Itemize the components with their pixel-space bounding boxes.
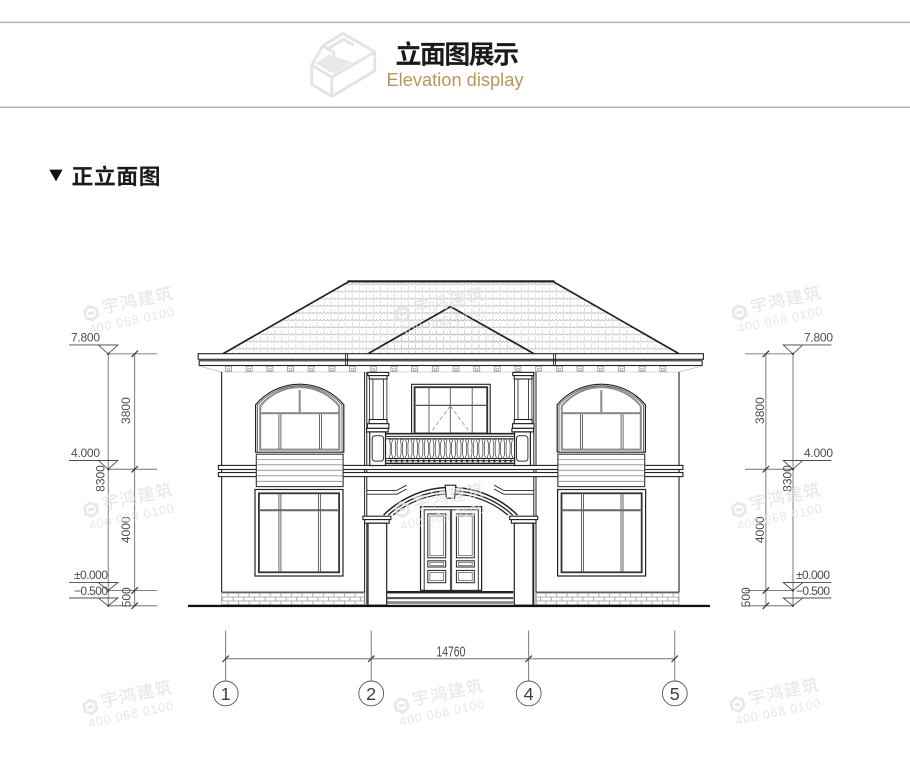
- svg-text:8300: 8300: [93, 465, 107, 492]
- svg-text:2: 2: [366, 684, 376, 704]
- svg-text:Elevation display: Elevation display: [387, 69, 525, 90]
- svg-text:−0.500: −0.500: [796, 584, 830, 598]
- svg-text:5: 5: [670, 684, 680, 704]
- svg-text:3800: 3800: [753, 397, 767, 424]
- svg-text:±0.000: ±0.000: [796, 568, 830, 582]
- svg-text:4000: 4000: [753, 516, 767, 543]
- svg-text:4.000: 4.000: [71, 446, 100, 460]
- svg-text:14760: 14760: [436, 643, 465, 660]
- svg-text:8300: 8300: [780, 465, 794, 492]
- svg-text:7.800: 7.800: [804, 330, 833, 344]
- svg-text:−0.500: −0.500: [74, 584, 108, 598]
- svg-text:500: 500: [739, 587, 753, 607]
- svg-text:1: 1: [221, 684, 231, 704]
- svg-text:500: 500: [120, 587, 134, 607]
- svg-text:3800: 3800: [119, 397, 133, 424]
- svg-text:4.000: 4.000: [804, 446, 833, 460]
- svg-text:4: 4: [524, 684, 534, 704]
- svg-text:7.800: 7.800: [71, 330, 100, 344]
- svg-text:±0.000: ±0.000: [74, 568, 108, 582]
